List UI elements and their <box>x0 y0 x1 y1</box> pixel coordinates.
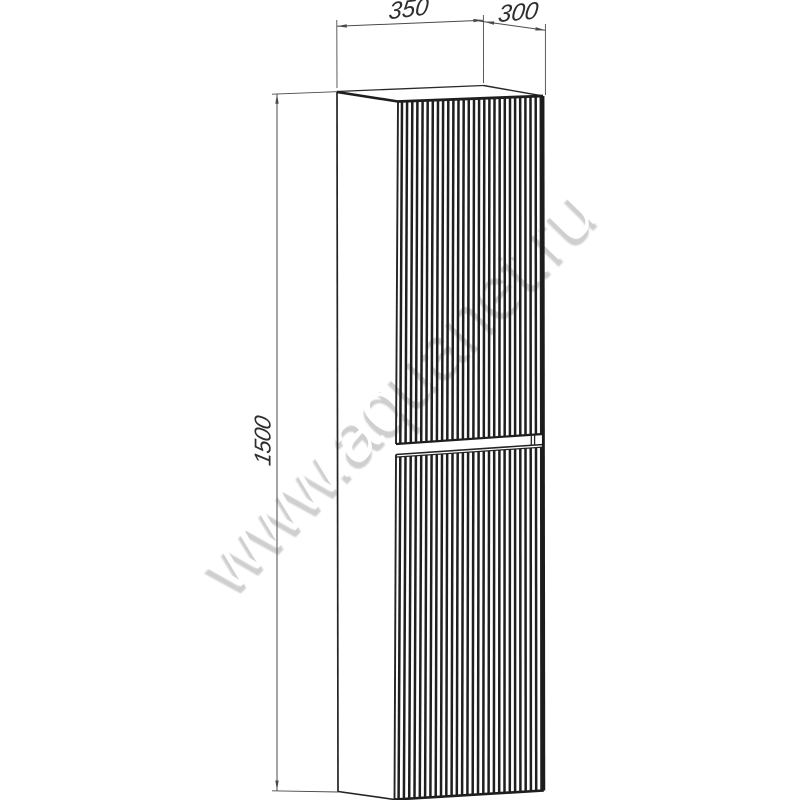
svg-text:300: 300 <box>497 0 541 28</box>
svg-text:1500: 1500 <box>250 413 276 467</box>
